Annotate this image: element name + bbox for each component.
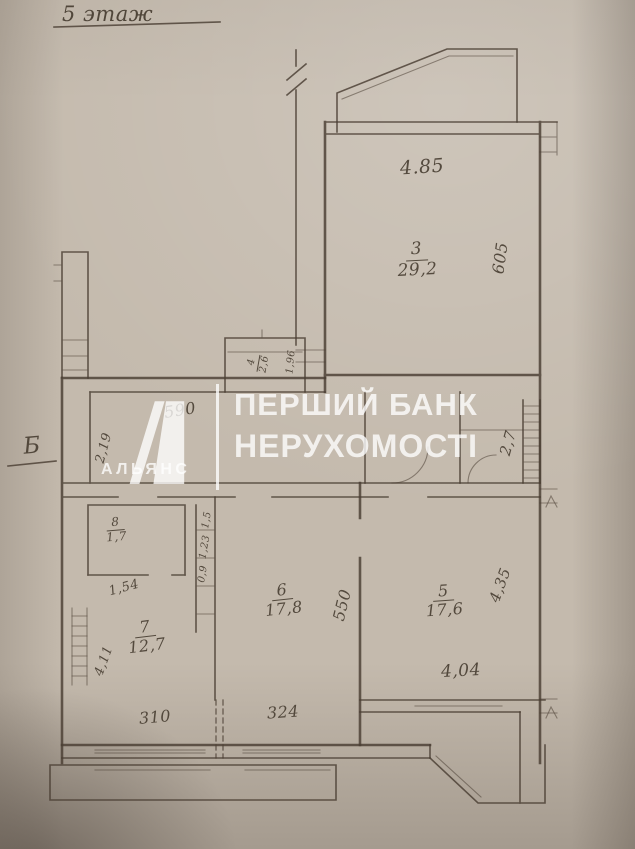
top-balcony bbox=[337, 49, 517, 132]
floor-plan-drawing bbox=[0, 0, 635, 849]
bottom-wall-windows bbox=[62, 745, 430, 758]
room-6-area: 17,8 bbox=[264, 599, 303, 621]
floor-plan-photo: 5 этаж Б 3 29,2 4.85 605 590 2,19 4 2,6 … bbox=[0, 0, 635, 849]
room-7-label: 7 12,7 bbox=[125, 616, 167, 658]
dim-window-room7: 310 bbox=[138, 706, 172, 728]
stair-hatch bbox=[523, 400, 540, 483]
right-wall-ticks bbox=[540, 122, 557, 718]
room-6-label: 6 17,8 bbox=[262, 579, 303, 621]
room-3-number: 3 bbox=[405, 239, 427, 261]
room8-walls bbox=[88, 505, 185, 575]
dim-room5-bottom: 4,04 bbox=[441, 660, 482, 682]
bottom-left-balcony bbox=[50, 765, 336, 800]
room5-bottom bbox=[360, 700, 545, 712]
room7-hatch bbox=[72, 608, 87, 685]
section-letter: Б bbox=[22, 432, 42, 459]
watermark-brand: АЛЬЯНС bbox=[101, 461, 190, 479]
room-8-area: 1,7 bbox=[106, 530, 128, 546]
watermark-divider bbox=[216, 384, 219, 490]
break-line bbox=[287, 50, 306, 345]
bottom-right-bay bbox=[430, 712, 545, 803]
room-3-label: 3 29,2 bbox=[396, 239, 438, 281]
room-8-label: 8 1,7 bbox=[104, 515, 127, 545]
room-3-area: 29,2 bbox=[397, 259, 438, 281]
dim-window-room6: 324 bbox=[266, 701, 299, 722]
watermark-line1: ПЕРШИЙ БАНК bbox=[234, 387, 478, 423]
page-title: 5 этаж bbox=[62, 2, 153, 26]
room-5-area: 17,6 bbox=[425, 600, 464, 621]
room-5-label: 5 17,6 bbox=[424, 581, 464, 621]
watermark-line2: НЕРУХОМОСТІ bbox=[234, 428, 478, 465]
section-letter-underline bbox=[8, 461, 56, 466]
dim-room4-side: 1,96 bbox=[284, 349, 297, 374]
left-wing bbox=[54, 252, 88, 378]
dim-room3-top: 4.85 bbox=[399, 154, 445, 179]
